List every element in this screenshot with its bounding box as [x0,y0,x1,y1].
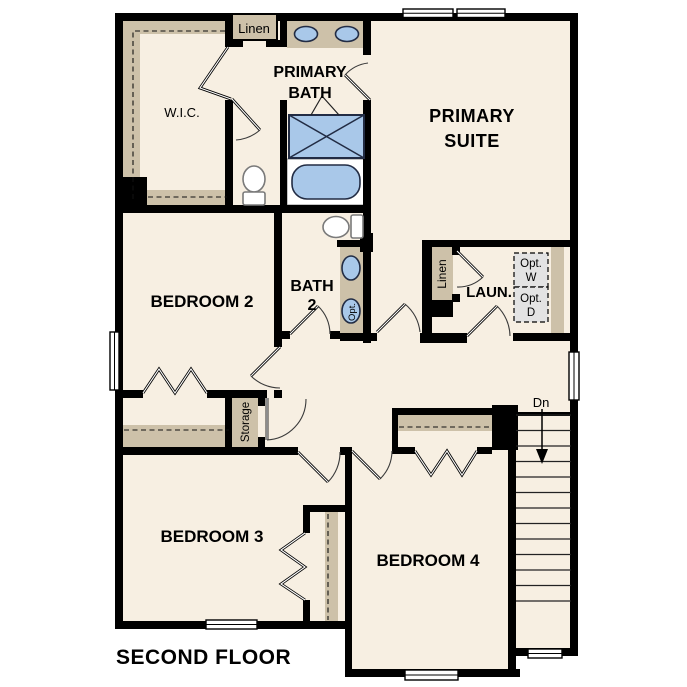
bedroom4-label: BEDROOM 4 [377,551,481,570]
opt-dryer-label-line2: D [527,307,535,319]
stairs-dn-label: Dn [533,395,550,410]
primary-bath-label-line1: PRIMARY [273,64,347,81]
bath2-opt-sink-label: Opt. [347,303,358,321]
storage-label: Storage [240,402,252,442]
floor-plan-page: PRIMARY SUITE PRIMARY BATH W.I.C. Linen … [0,0,687,687]
opt-washer-label-line1: Opt. [520,258,542,270]
opt-dryer-label-line1: Opt. [520,293,542,305]
sink-icon [336,27,359,42]
opt-washer-label-line2: W [526,272,537,284]
bath2-label-line2: 2 [308,297,317,314]
sink-icon [295,27,318,42]
linen-top-label: Linen [238,21,270,36]
bathtub-icon [292,165,360,199]
sink-icon [342,256,360,280]
laundry-label: LAUN. [466,284,512,301]
toilet-icon [323,217,349,238]
toilet-icon [243,166,265,192]
toilet-tank [243,192,265,205]
wic-label: W.I.C. [164,105,199,120]
toilet-tank [351,215,363,238]
laundry-linen-label: Linen [435,259,449,288]
primary-bath-label-line2: BATH [288,85,331,102]
primary-suite-label-line1: PRIMARY [429,106,515,126]
floor-plan-drawing: PRIMARY SUITE PRIMARY BATH W.I.C. Linen … [0,0,687,687]
bath2-label-line1: BATH [290,278,333,295]
page-title: SECOND FLOOR [116,646,291,669]
primary-suite-label-line2: SUITE [444,131,500,151]
bedroom2-label: BEDROOM 2 [151,292,254,311]
bedroom3-label: BEDROOM 3 [161,527,264,546]
